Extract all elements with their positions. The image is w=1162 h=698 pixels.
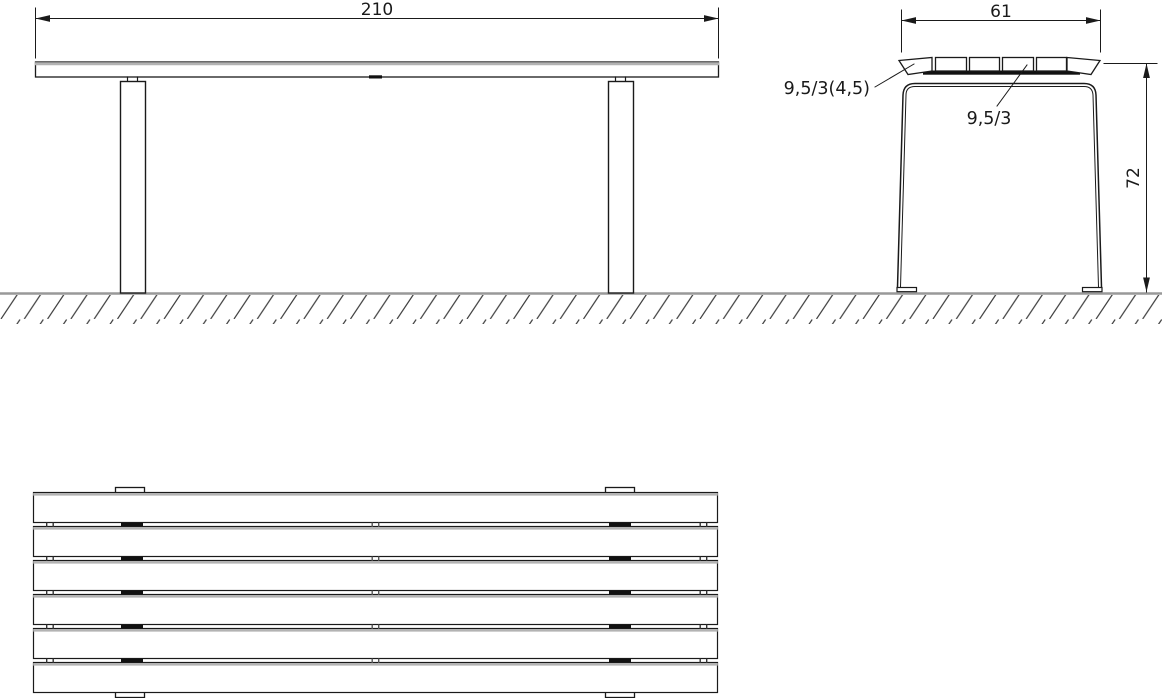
arrow-down-icon <box>1143 278 1150 293</box>
mid-slat-label: 9,5/3 <box>967 109 1012 129</box>
ground-hatch <box>0 295 1162 324</box>
leader-line <box>875 64 914 87</box>
edge-slat-left <box>899 58 932 75</box>
left-foot <box>897 288 917 292</box>
arrow-left-icon <box>36 15 51 22</box>
arrow-left-icon <box>902 17 917 24</box>
plan-slat <box>34 595 718 625</box>
side-height-dimension: 72 <box>1124 167 1144 189</box>
arrow-right-icon <box>1086 17 1101 24</box>
slat <box>1003 58 1034 72</box>
front-width-dimension: 210 <box>361 0 393 20</box>
plan-slat <box>34 629 718 659</box>
slat <box>936 58 967 72</box>
dim-61: 61 <box>902 2 1101 52</box>
slat <box>970 58 1000 72</box>
edge-slat-right <box>1067 58 1100 75</box>
plan-slat <box>34 663 718 693</box>
plan-slat <box>34 493 718 523</box>
front-right-leg <box>609 77 634 293</box>
side-depth-dimension: 61 <box>990 2 1012 22</box>
plan-view <box>34 488 718 698</box>
plan-slat <box>34 527 718 557</box>
edge-slat-label: 9,5/3(4,5) <box>784 79 870 99</box>
drawing-svg: 210 61 <box>0 0 1162 698</box>
plan-slat <box>34 561 718 591</box>
dim-72: 72 <box>1104 64 1157 293</box>
front-center-joint <box>369 75 382 78</box>
ground <box>0 294 1162 325</box>
front-left-leg <box>121 77 146 293</box>
slat <box>1037 58 1067 72</box>
technical-drawing-bench: 210 61 <box>0 0 1162 698</box>
arrow-right-icon <box>704 15 719 22</box>
arrow-up-icon <box>1143 64 1150 79</box>
side-view: 61 9,5/3(4,5) 9,5/3 <box>784 2 1157 292</box>
front-view: 210 <box>36 0 719 293</box>
dim-210: 210 <box>36 0 719 58</box>
side-slats <box>899 58 1100 75</box>
right-foot <box>1083 288 1103 292</box>
